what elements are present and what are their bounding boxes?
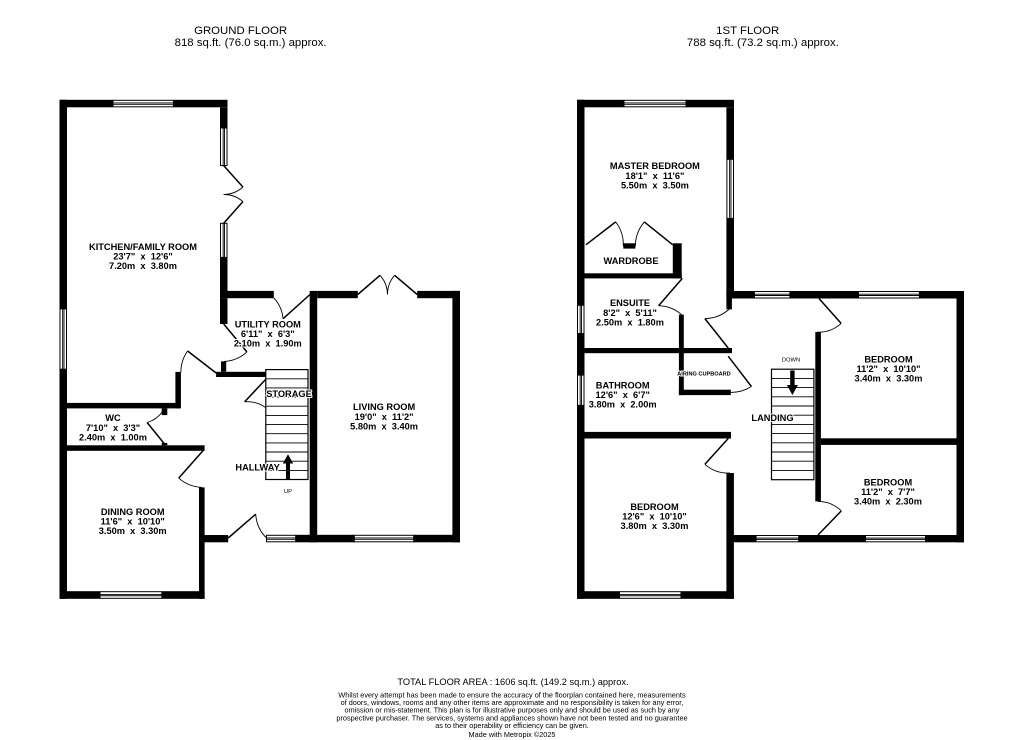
- svg-text:2.50m x 1.80m: 2.50m x 1.80m: [596, 317, 664, 327]
- svg-text:19'0" x 11'2": 19'0" x 11'2": [355, 412, 414, 422]
- svg-text:1ST FLOOR: 1ST FLOOR: [716, 25, 779, 37]
- svg-text:KITCHEN/FAMILY ROOM: KITCHEN/FAMILY ROOM: [89, 242, 197, 252]
- svg-text:BEDROOM: BEDROOM: [864, 477, 913, 487]
- svg-text:6'11" x 6'3": 6'11" x 6'3": [241, 329, 295, 339]
- svg-text:12'6" x 6'7": 12'6" x 6'7": [596, 390, 650, 400]
- svg-text:UP: UP: [284, 489, 292, 495]
- svg-text:LIVING ROOM: LIVING ROOM: [353, 402, 415, 412]
- svg-text:WARDROBE: WARDROBE: [604, 256, 659, 266]
- svg-text:STORAGE: STORAGE: [266, 389, 312, 399]
- svg-text:LANDING: LANDING: [751, 413, 793, 423]
- svg-text:DOWN: DOWN: [782, 358, 800, 364]
- svg-text:11'2" x 10'10": 11'2" x 10'10": [856, 364, 920, 374]
- svg-text:3.50m x 3.30m: 3.50m x 3.30m: [99, 526, 167, 536]
- svg-text:3.40m x 3.30m: 3.40m x 3.30m: [855, 374, 923, 384]
- svg-text:GROUND FLOOR: GROUND FLOOR: [194, 25, 287, 37]
- svg-text:MASTER BEDROOM: MASTER BEDROOM: [610, 161, 700, 171]
- svg-text:DINING ROOM: DINING ROOM: [101, 507, 165, 517]
- svg-text:as to their operability or eff: as to their operability or efficiency ca…: [435, 721, 589, 730]
- svg-text:UTILITY ROOM: UTILITY ROOM: [235, 320, 301, 330]
- svg-text:818 sq.ft. (76.0 sq.m.) approx: 818 sq.ft. (76.0 sq.m.) approx.: [175, 37, 327, 49]
- svg-text:WC: WC: [105, 413, 121, 423]
- svg-text:Made with Metropix ©2025: Made with Metropix ©2025: [469, 730, 556, 739]
- svg-text:23'7" x 12'6": 23'7" x 12'6": [113, 252, 172, 262]
- svg-text:BEDROOM: BEDROOM: [630, 502, 679, 512]
- svg-text:7'10" x 3'3": 7'10" x 3'3": [86, 423, 140, 433]
- svg-text:3.80m x 2.00m: 3.80m x 2.00m: [589, 400, 657, 410]
- svg-text:TOTAL FLOOR AREA : 1606 sq.ft.: TOTAL FLOOR AREA : 1606 sq.ft. (149.2 sq…: [397, 677, 628, 687]
- svg-text:12'6" x 10'10": 12'6" x 10'10": [622, 512, 687, 522]
- svg-text:3.80m x 3.30m: 3.80m x 3.30m: [621, 521, 689, 531]
- svg-text:ENSUITE: ENSUITE: [610, 298, 650, 308]
- svg-text:AIRING CUPBOARD: AIRING CUPBOARD: [677, 372, 730, 378]
- svg-text:18'1" x 11'6": 18'1" x 11'6": [625, 171, 684, 181]
- svg-text:8'2" x 5'11": 8'2" x 5'11": [603, 308, 657, 318]
- svg-text:5.80m x 3.40m: 5.80m x 3.40m: [350, 421, 418, 431]
- svg-text:HALLWAY: HALLWAY: [235, 463, 280, 473]
- svg-text:BATHROOM: BATHROOM: [596, 380, 650, 390]
- svg-text:2.10m x 1.90m: 2.10m x 1.90m: [234, 339, 302, 349]
- svg-text:7.20m x 3.80m: 7.20m x 3.80m: [109, 261, 177, 271]
- svg-text:2.40m x 1.00m: 2.40m x 1.00m: [79, 432, 147, 442]
- svg-text:11'6" x 10'10": 11'6" x 10'10": [101, 517, 165, 527]
- svg-text:3.40m x 2.30m: 3.40m x 2.30m: [854, 497, 922, 507]
- svg-text:11'2" x 7'7": 11'2" x 7'7": [861, 487, 915, 497]
- svg-text:5.50m x 3.50m: 5.50m x 3.50m: [621, 180, 689, 190]
- svg-text:BEDROOM: BEDROOM: [864, 355, 913, 365]
- svg-text:788 sq.ft. (73.2 sq.m.) approx: 788 sq.ft. (73.2 sq.m.) approx.: [687, 37, 839, 49]
